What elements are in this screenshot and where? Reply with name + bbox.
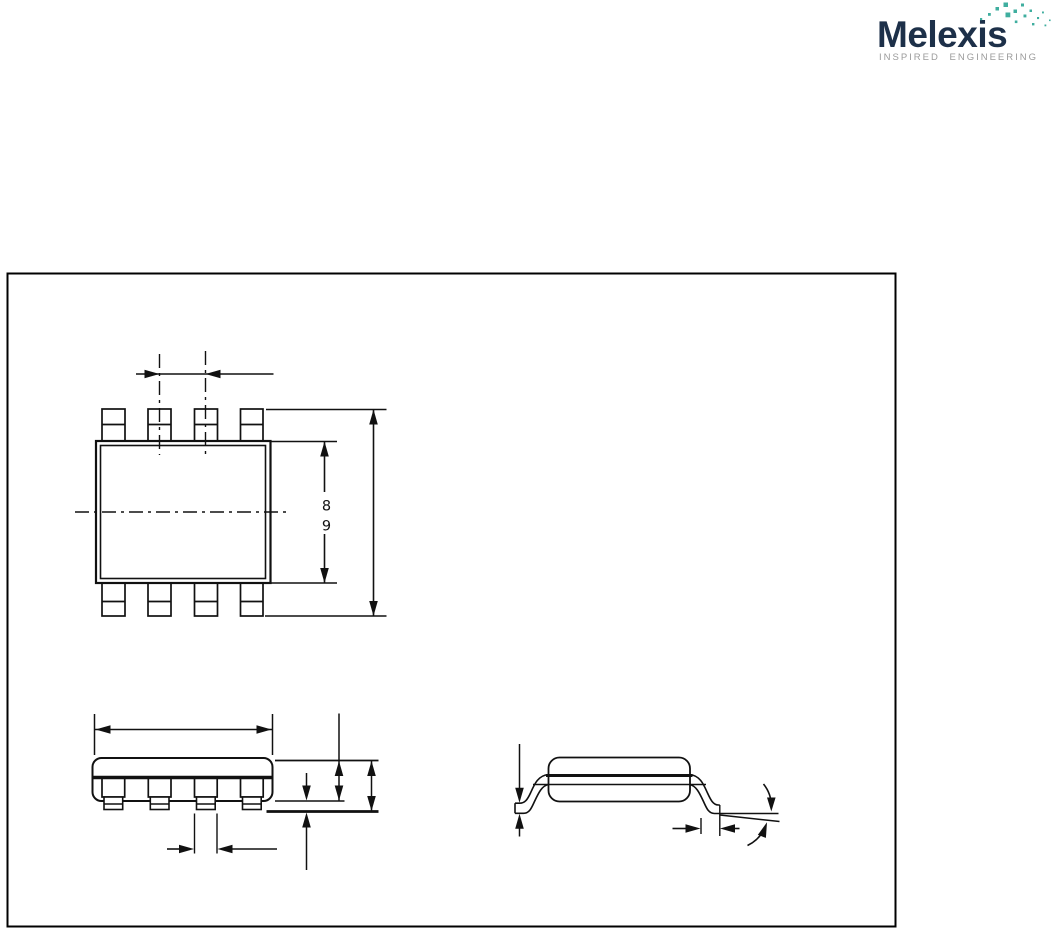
- package-front-view: [93, 714, 379, 871]
- dimension-lead-width: [167, 814, 277, 854]
- dimension-pin-pitch: [136, 370, 274, 379]
- callout-9: 9: [322, 519, 331, 535]
- package-top-view: 8 9: [75, 351, 387, 616]
- package-outline-figure: 8 9: [0, 0, 1053, 930]
- leads: [102, 778, 263, 810]
- dimension-foot-angle: [720, 784, 780, 846]
- dimension-body-width: 8 9: [272, 442, 338, 584]
- pins-bottom: [102, 583, 263, 616]
- callout-8: 8: [322, 499, 331, 515]
- dimension-heights: [267, 714, 379, 871]
- package-body: [549, 758, 691, 802]
- dimension-body-length: [95, 714, 273, 755]
- pixel-cloud-icon: [980, 3, 1051, 27]
- datasheet-page: Melexis INSPIRED ENGINEERING: [0, 0, 1053, 930]
- centerlines: [75, 351, 287, 512]
- pins-top: [102, 409, 263, 441]
- package-side-view: [515, 744, 780, 846]
- dimension-foot-length: [673, 805, 740, 836]
- figure-frame: [8, 274, 896, 927]
- dimension-lead-thickness: [515, 744, 524, 837]
